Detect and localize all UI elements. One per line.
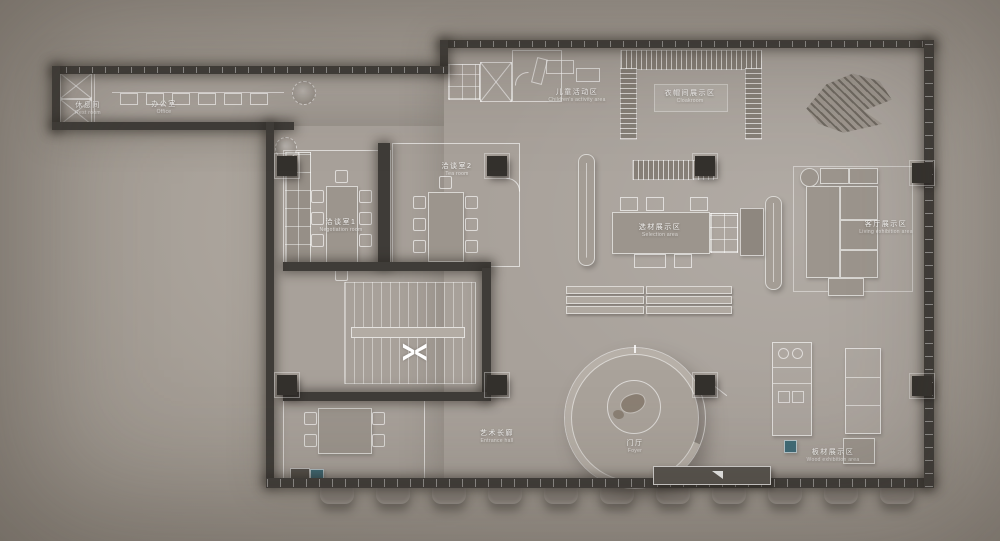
room-label-rest: 休息间 Rest room — [75, 101, 101, 117]
wardrobe-run-top — [620, 50, 762, 70]
office-desk — [198, 93, 216, 105]
shelf-line — [773, 367, 811, 368]
sofa-back — [820, 168, 849, 184]
office-wall-bottom — [52, 122, 294, 130]
display-board — [765, 196, 782, 290]
chair — [304, 412, 317, 425]
display-box — [778, 391, 790, 403]
sofa-seat — [806, 186, 840, 278]
display-dish — [792, 348, 803, 359]
chair — [646, 197, 664, 211]
chair — [465, 196, 478, 209]
label-cn: 选材展示区 — [639, 223, 682, 232]
room-label-office: 办公室 Office — [151, 100, 177, 116]
office-wall-left — [52, 66, 60, 130]
exterior-wall-right — [924, 40, 934, 488]
sofa-seat — [840, 186, 878, 220]
chair — [372, 412, 385, 425]
shelf-line — [846, 377, 880, 378]
pillar — [277, 156, 297, 176]
storage-rack — [60, 73, 92, 99]
label-cn: 休息间 — [75, 101, 101, 110]
pantry-unit — [448, 64, 480, 100]
room-label-cloakroom: 衣帽间展示区 Cloakroom — [665, 89, 716, 105]
display-table — [566, 296, 644, 304]
display-board — [578, 154, 595, 266]
sofa-ottoman — [828, 278, 864, 296]
chair — [439, 176, 452, 189]
side-cabinet — [740, 208, 764, 256]
chair — [359, 190, 372, 203]
exterior-wall-left — [266, 122, 274, 484]
wardrobe-run-right — [745, 68, 762, 140]
sink-unit — [784, 440, 797, 453]
chair — [311, 234, 324, 247]
chair — [372, 434, 385, 447]
small-meeting-table — [318, 408, 372, 454]
room-label-selection: 选材展示区 Selection area — [639, 223, 682, 239]
window-ticks — [53, 67, 447, 73]
sofa-back — [849, 168, 878, 184]
display-table — [646, 306, 732, 314]
office-wall-top — [52, 66, 448, 74]
label-en: Tea room — [442, 171, 473, 178]
label-en: Rest room — [75, 110, 101, 117]
pillar — [277, 375, 297, 395]
plant-icon — [292, 81, 316, 105]
display-case — [653, 466, 771, 485]
display-table — [566, 306, 644, 314]
exterior-wall-bottom — [266, 478, 932, 488]
office-desk — [224, 93, 242, 105]
interior-wall — [283, 262, 491, 271]
sofa-seat — [840, 250, 878, 278]
bench — [634, 254, 666, 268]
shelf-line — [773, 383, 811, 384]
label-cn: 儿童活动区 — [548, 88, 605, 97]
display-box — [792, 391, 804, 403]
room-label-living: 客厅展示区 Living exhibition area — [859, 220, 913, 236]
window-ticks — [925, 41, 933, 487]
pillar — [695, 375, 715, 395]
wall-shelf — [546, 60, 574, 74]
chair — [413, 218, 426, 231]
display-dish — [778, 348, 789, 359]
label-cn: 洽谈室1 — [320, 218, 363, 227]
label-cn: 艺术长廊 — [480, 429, 514, 438]
chair — [311, 190, 324, 203]
chair — [413, 196, 426, 209]
interior-wall — [378, 143, 390, 267]
pillar — [487, 375, 507, 395]
display-table — [646, 286, 732, 294]
exterior-wall-top — [440, 40, 934, 48]
label-cn: 门厅 — [627, 439, 644, 448]
window-ticks — [441, 41, 933, 47]
pillar — [487, 156, 507, 176]
pillar — [695, 156, 715, 176]
label-en: Wood exhibition area — [807, 457, 860, 464]
shelf-line — [846, 405, 880, 406]
chair — [359, 234, 372, 247]
label-en: Foyer — [627, 448, 644, 455]
room-label-meeting1: 洽谈室1 Negotiation room — [320, 218, 363, 234]
label-cn: 板材展示区 — [807, 448, 860, 457]
chair — [304, 434, 317, 447]
wardrobe-run-left — [620, 68, 637, 140]
room-label-meeting2: 洽谈室2 Tea room — [442, 162, 473, 178]
display-table — [646, 296, 732, 304]
chair — [465, 240, 478, 253]
panel-display-cabinet — [845, 348, 881, 434]
label-en: Negotiation room — [320, 227, 363, 234]
chair — [335, 170, 348, 183]
panel-display-cabinet — [772, 342, 812, 436]
pillar — [912, 376, 932, 396]
axis-tick — [634, 345, 636, 353]
label-en: Entrance hall — [480, 438, 514, 445]
side-unit — [710, 213, 738, 253]
room-label-children: 儿童活动区 Children's activity area — [548, 88, 605, 104]
room-label-wood: 板材展示区 Wood exhibition area — [807, 448, 860, 464]
pillar — [912, 163, 932, 183]
shaft-box — [480, 62, 512, 102]
display-table — [566, 286, 644, 294]
label-en: Office — [151, 109, 177, 116]
sofa-pouf — [800, 168, 819, 187]
tea-table — [428, 192, 464, 262]
label-cn: 衣帽间展示区 — [665, 89, 716, 98]
interior-wall — [283, 392, 491, 401]
chair — [413, 240, 426, 253]
chair — [620, 197, 638, 211]
window-ticks — [267, 479, 931, 487]
room-label-gallery: 艺术长廊 Entrance hall — [480, 429, 514, 445]
label-cn: 客厅展示区 — [859, 220, 913, 229]
office-desk — [120, 93, 138, 105]
chair — [674, 254, 692, 268]
triangle-glyph — [712, 471, 723, 479]
office-desk — [250, 93, 268, 105]
floorplan-stage: >< — [0, 0, 1000, 541]
stair-direction-icon: >< — [402, 334, 427, 372]
chair — [465, 218, 478, 231]
room-label-foyer: 门厅 Foyer — [627, 439, 644, 455]
label-en: Selection area — [639, 232, 682, 239]
chair — [690, 197, 708, 211]
label-cn: 洽谈室2 — [442, 162, 473, 171]
label-en: Cloakroom — [665, 98, 716, 105]
label-cn: 办公室 — [151, 100, 177, 109]
wall-shelf — [576, 68, 600, 82]
label-en: Living exhibition area — [859, 229, 913, 236]
label-en: Children's activity area — [548, 97, 605, 104]
